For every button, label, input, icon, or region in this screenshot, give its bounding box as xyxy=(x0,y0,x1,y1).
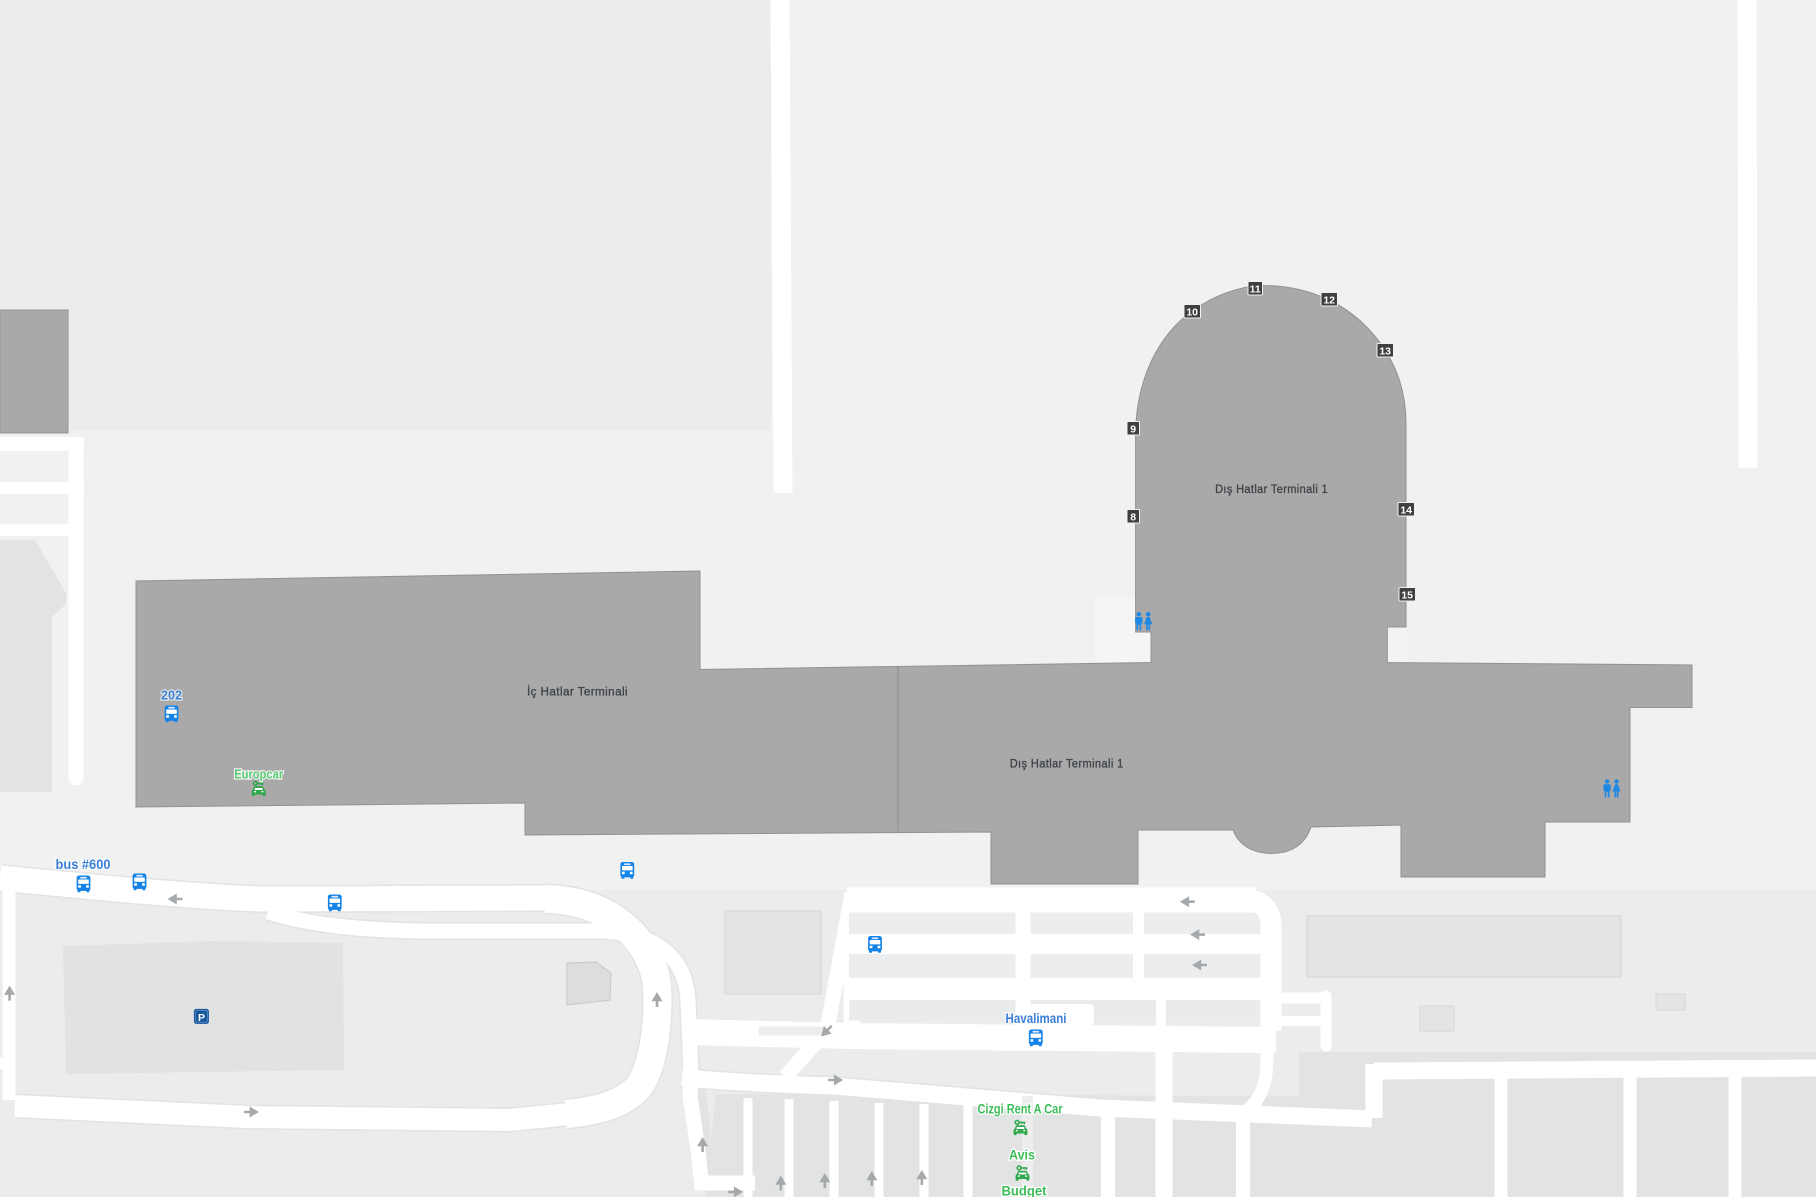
svg-text:13: 13 xyxy=(1379,346,1391,358)
svg-text:202: 202 xyxy=(161,688,182,703)
svg-text:Avis: Avis xyxy=(1009,1148,1035,1163)
svg-text:10: 10 xyxy=(1186,307,1198,319)
svg-text:15: 15 xyxy=(1401,590,1413,602)
svg-text:Cizgi Rent A Car: Cizgi Rent A Car xyxy=(978,1102,1064,1117)
svg-text:bus #600: bus #600 xyxy=(56,857,111,872)
svg-text:14: 14 xyxy=(1400,505,1412,517)
svg-text:Havalimani: Havalimani xyxy=(1006,1011,1067,1026)
svg-text:12: 12 xyxy=(1323,295,1335,307)
svg-text:11: 11 xyxy=(1250,284,1261,296)
svg-text:Dış Hatlar Terminali 1: Dış Hatlar Terminali 1 xyxy=(1010,759,1124,771)
svg-text:Budget: Budget xyxy=(1002,1184,1047,1197)
svg-text:9: 9 xyxy=(1130,424,1136,436)
svg-text:Dış Hatlar Terminali 1: Dış Hatlar Terminali 1 xyxy=(1215,484,1328,496)
svg-text:İç Hatlar Terminali: İç Hatlar Terminali xyxy=(527,686,628,699)
svg-text:P: P xyxy=(198,1012,205,1024)
svg-text:Europcar: Europcar xyxy=(234,768,283,782)
svg-text:8: 8 xyxy=(1130,512,1136,524)
